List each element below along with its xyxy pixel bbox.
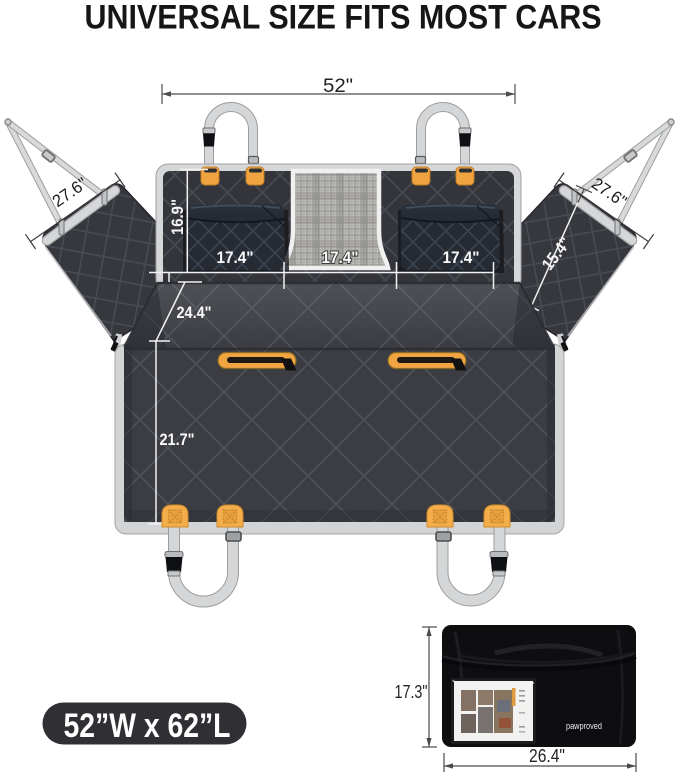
svg-text:pawproved: pawproved — [566, 721, 602, 732]
svg-text:17.4": 17.4" — [322, 248, 359, 267]
svg-text:17.3": 17.3" — [395, 682, 428, 702]
svg-text:17.4": 17.4" — [217, 248, 254, 267]
svg-text:24.4": 24.4" — [177, 303, 212, 322]
svg-text:26.4": 26.4" — [529, 746, 565, 766]
svg-text:52": 52" — [323, 76, 353, 97]
svg-text:52”W x 62”L: 52”W x 62”L — [64, 707, 231, 745]
svg-text:16.9": 16.9" — [168, 199, 187, 235]
svg-text:21.7": 21.7" — [160, 430, 195, 449]
svg-text:17.4": 17.4" — [443, 248, 480, 267]
svg-text:UNIVERSAL SIZE FITS MOST CARS: UNIVERSAL SIZE FITS MOST CARS — [85, 0, 602, 37]
